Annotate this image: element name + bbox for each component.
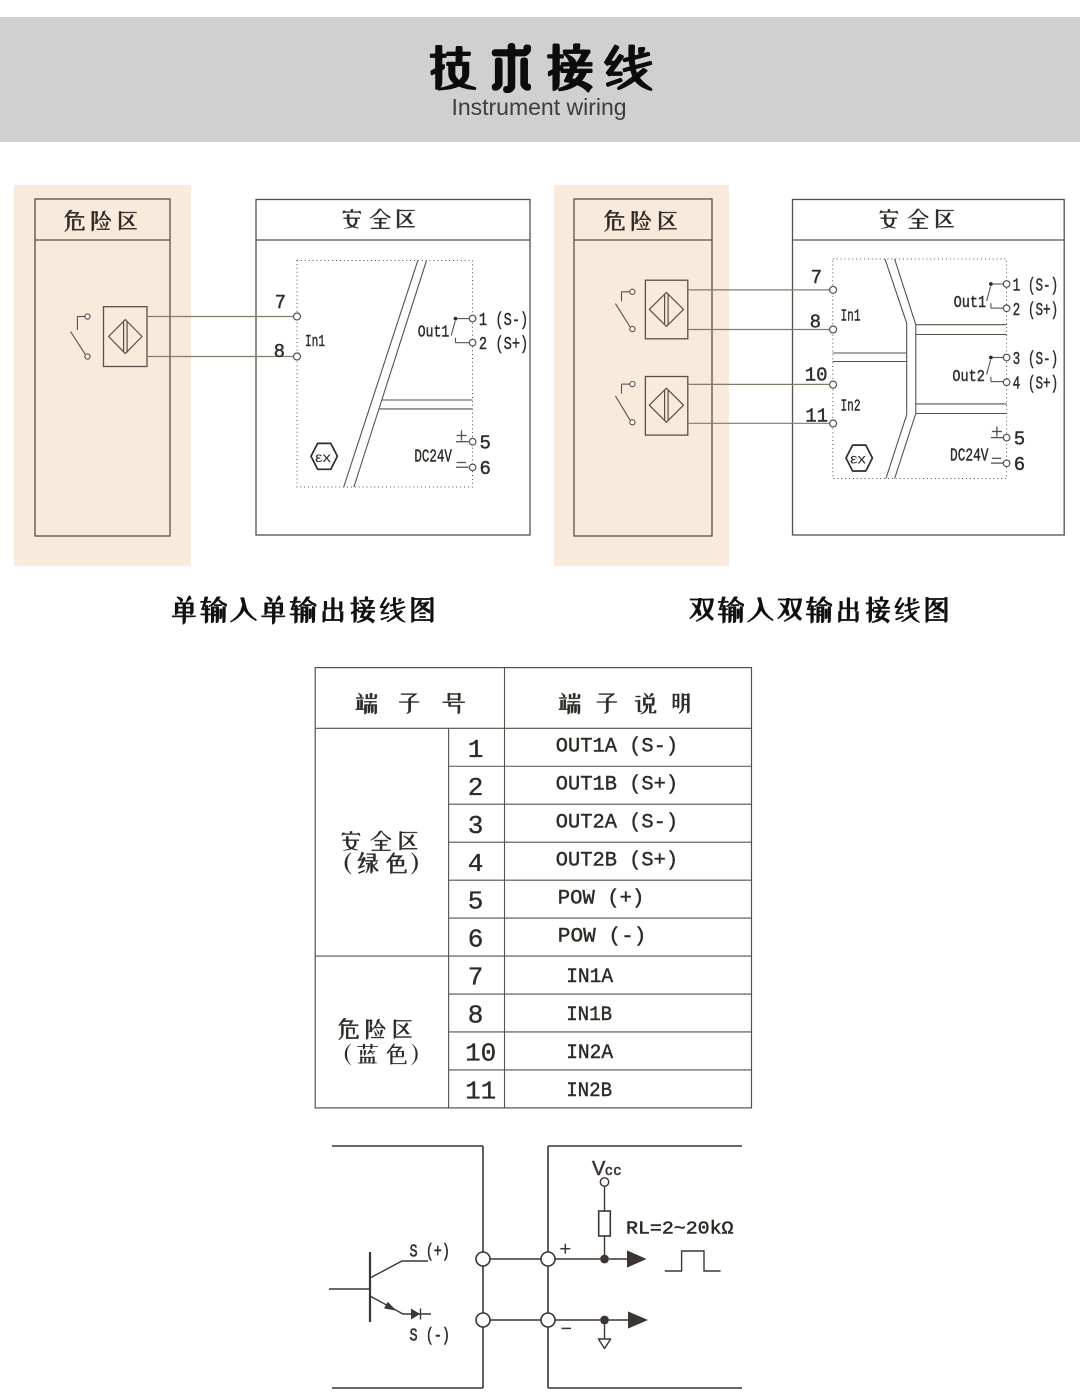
svg-text:OUT1B (S+): OUT1B (S+) xyxy=(556,773,678,796)
svg-text:5: 5 xyxy=(468,887,484,917)
svg-text:2: 2 xyxy=(468,773,484,803)
svg-text:OUT2B (S+): OUT2B (S+) xyxy=(556,849,678,872)
svg-text:5: 5 xyxy=(1014,428,1025,450)
svg-text:POW (-): POW (-) xyxy=(558,925,647,948)
svg-text:εx: εx xyxy=(850,451,866,467)
svg-text:OUT2A (S-): OUT2A (S-) xyxy=(556,811,678,834)
svg-text:εx: εx xyxy=(315,449,331,465)
svg-text:10: 10 xyxy=(805,365,828,387)
svg-text:8: 8 xyxy=(274,341,285,363)
svg-text:RL=2~20kΩ: RL=2~20kΩ xyxy=(626,1219,734,1240)
svg-text:Instrument wiring: Instrument wiring xyxy=(451,94,626,120)
svg-text:7: 7 xyxy=(468,963,484,993)
svg-text:7: 7 xyxy=(275,292,286,314)
svg-text:4: 4 xyxy=(468,849,484,879)
svg-text:IN2A: IN2A xyxy=(566,1042,613,1065)
svg-text:1 (S-): 1 (S-) xyxy=(1013,277,1059,297)
svg-text:V: V xyxy=(592,1158,606,1180)
svg-text:6: 6 xyxy=(468,925,484,955)
svg-text:6: 6 xyxy=(480,458,491,480)
svg-text:1 (S-): 1 (S-) xyxy=(479,311,528,331)
svg-text:S (-): S (-) xyxy=(410,1327,451,1347)
svg-text:11: 11 xyxy=(465,1077,496,1107)
svg-text:IN2B: IN2B xyxy=(566,1080,612,1103)
svg-text:8: 8 xyxy=(468,1001,484,1031)
svg-text:11: 11 xyxy=(805,406,828,428)
svg-text:IN1A: IN1A xyxy=(566,966,613,989)
svg-text:7: 7 xyxy=(811,267,822,289)
svg-text:Out1: Out1 xyxy=(954,293,987,312)
svg-text:2 (S+): 2 (S+) xyxy=(479,335,528,355)
svg-text:4 (S+): 4 (S+) xyxy=(1013,374,1059,394)
svg-text:10: 10 xyxy=(465,1039,496,1069)
svg-text:DC24V: DC24V xyxy=(950,446,989,466)
svg-text:Out1: Out1 xyxy=(418,323,450,342)
svg-text:In1: In1 xyxy=(305,333,325,352)
svg-text:OUT1A (S-): OUT1A (S-) xyxy=(556,735,678,758)
svg-text:S (+): S (+) xyxy=(410,1243,451,1263)
svg-text:DC24V: DC24V xyxy=(414,447,452,467)
svg-text:5: 5 xyxy=(480,433,491,455)
svg-text:POW (+): POW (+) xyxy=(558,887,645,910)
svg-text:8: 8 xyxy=(810,312,821,334)
svg-text:In1: In1 xyxy=(841,308,861,327)
svg-text:3: 3 xyxy=(468,811,484,841)
svg-text:1: 1 xyxy=(468,735,484,765)
svg-text:Out2: Out2 xyxy=(952,367,985,386)
svg-text:6: 6 xyxy=(1014,454,1025,476)
svg-text:IN1B: IN1B xyxy=(566,1004,612,1027)
svg-text:cc: cc xyxy=(605,1162,622,1179)
svg-text:2 (S+): 2 (S+) xyxy=(1013,301,1059,321)
svg-text:3 (S-): 3 (S-) xyxy=(1013,350,1059,370)
svg-text:In2: In2 xyxy=(841,398,861,417)
